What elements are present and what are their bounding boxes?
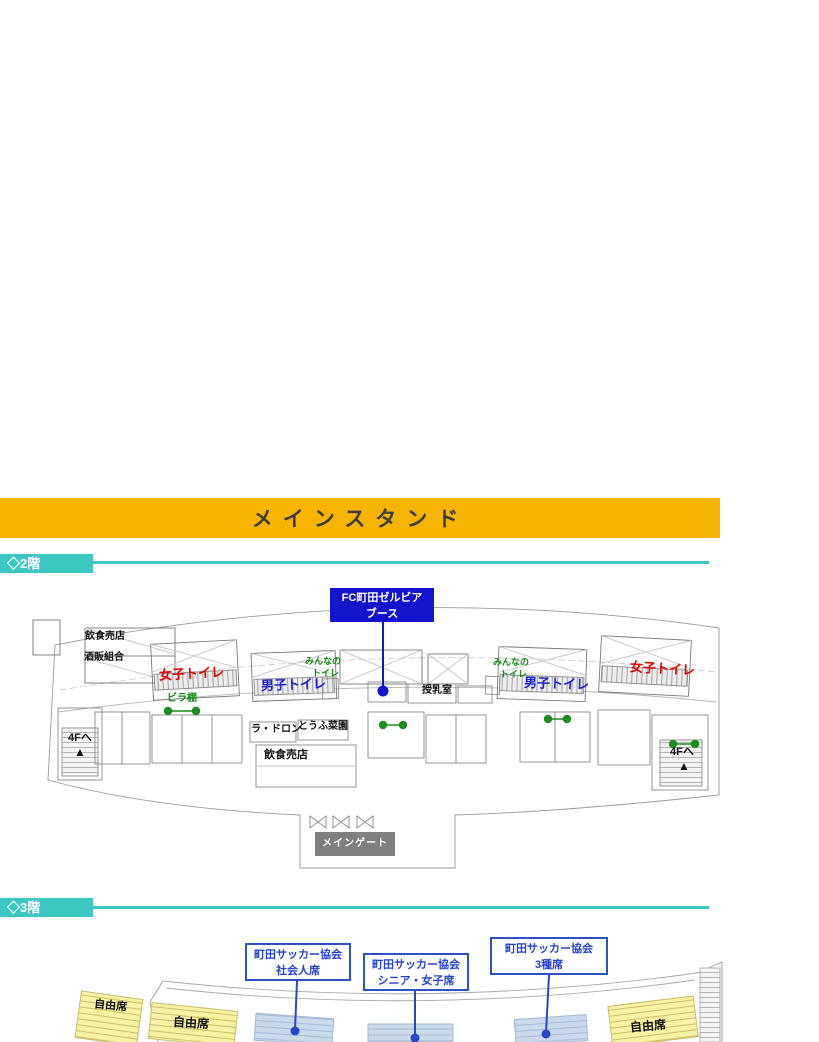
label-nursing-room: 授乳室 <box>422 686 452 696</box>
zelvia-booth-line1: FC町田ゼルビア <box>330 590 434 606</box>
callout-adult-line2: 社会人席 <box>247 963 349 979</box>
callout-u15-seats: 町田サッカー協会 3種席 <box>490 937 608 975</box>
label-shop-tofu: とうふ菜園 <box>298 722 348 732</box>
callout-u15-line1: 町田サッカー協会 <box>492 941 606 957</box>
flyer-rack-markers <box>165 708 699 748</box>
zelvia-booth-line2: ブース <box>330 606 434 622</box>
callout-adult-line1: 町田サッカー協会 <box>247 947 349 963</box>
floor2-section-label: ◇2階 <box>7 556 40 571</box>
floor3-seat-blocks <box>75 991 698 1042</box>
gate-turnstile-icons <box>310 816 373 828</box>
label-to-4f-left: 4Fへ <box>68 733 92 744</box>
callout-senior-line1: 町田サッカー協会 <box>365 957 467 973</box>
label-food-shop-top: 飲食売店 <box>85 632 125 642</box>
main-stand-title: メインスタンド <box>252 503 469 533</box>
main-stand-banner: メインスタンド <box>0 498 720 538</box>
label-free-seat-2: 自由席 <box>173 1016 210 1030</box>
label-mens-toilet-right: 男子トイレ <box>524 676 589 691</box>
up-arrow-icon-right: ▲ <box>678 760 690 772</box>
label-womens-toilet-left: 女子トイレ <box>159 665 225 681</box>
booth-location-dot <box>378 686 389 697</box>
floor3-section-header: ◇3階 <box>0 898 93 917</box>
floor2-section-rule <box>93 561 709 564</box>
label-everyone-toilet-right-line2: トイレ <box>500 670 527 679</box>
main-gate-label: メインゲート <box>315 832 395 856</box>
label-mens-toilet-left: 男子トイレ <box>261 677 326 692</box>
zelvia-booth-callout: FC町田ゼルビア ブース <box>330 588 434 622</box>
floor3-section-label: ◇3階 <box>7 900 40 915</box>
floor3-section-rule <box>93 906 709 909</box>
label-to-4f-right: 4Fへ <box>670 747 694 758</box>
label-free-seat-3: 自由席 <box>630 1018 667 1033</box>
label-shop-la-dron: ラ・ドロン <box>251 725 301 735</box>
label-liquor-union: 酒販組合 <box>84 653 124 663</box>
label-everyone-toilet-right-line1: みんなの <box>493 658 529 667</box>
callout-u15-line2: 3種席 <box>492 957 606 973</box>
up-arrow-icon-left: ▲ <box>74 746 86 758</box>
label-womens-toilet-right: 女子トイレ <box>630 660 696 676</box>
callout-adult-seats: 町田サッカー協会 社会人席 <box>245 943 351 981</box>
label-flyer-rack: ビラ棚 <box>167 694 197 704</box>
label-food-shop-bottom: 飲食売店 <box>264 750 308 761</box>
stadium-map-page: メインスタンド ◇2階 ◇3階 FC町田ゼルビア ブース 飲食売店 酒販組合 女… <box>0 0 819 1042</box>
floor2-plan <box>33 608 719 868</box>
label-everyone-toilet-left-line2: トイレ <box>312 669 339 678</box>
label-everyone-toilet-left-line1: みんなの <box>305 657 341 666</box>
callout-senior-women-seats: 町田サッカー協会 シニア・女子席 <box>363 953 469 991</box>
callout-senior-line2: シニア・女子席 <box>365 973 467 989</box>
floor2-section-header: ◇2階 <box>0 554 93 573</box>
